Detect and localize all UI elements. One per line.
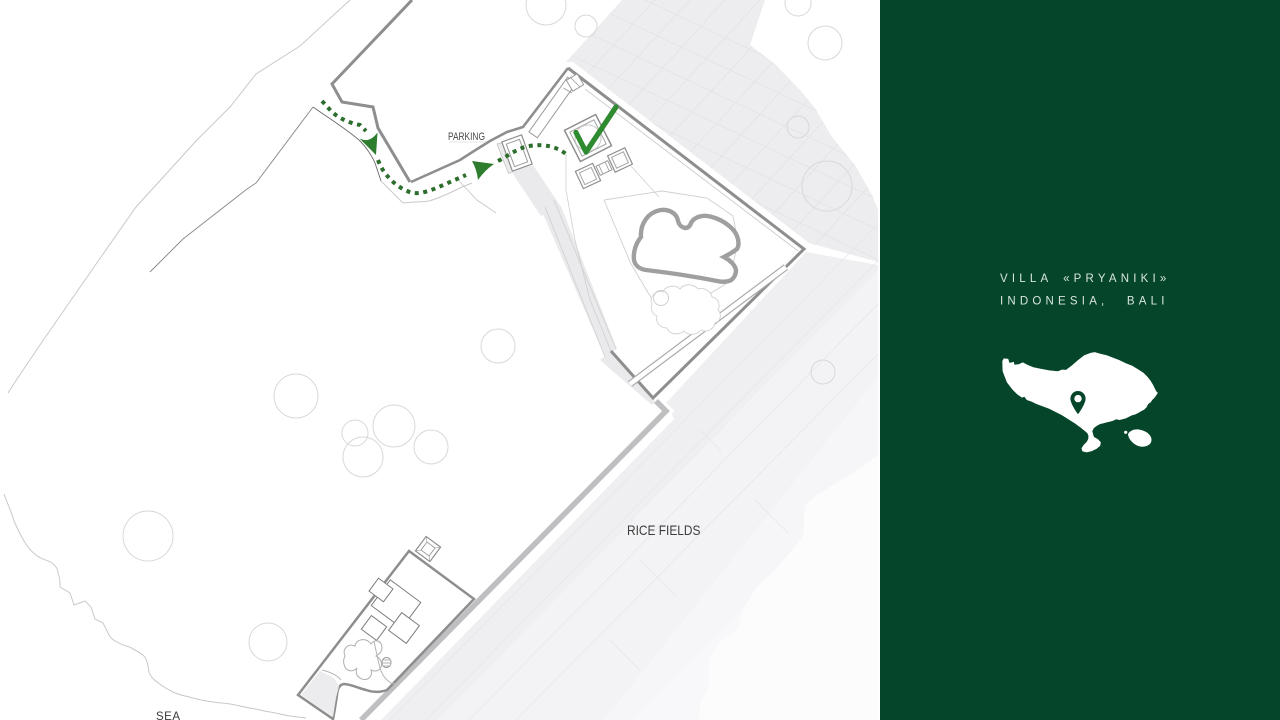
svg-text:VILLA «PRYANIKI»: VILLA «PRYANIKI»	[1000, 273, 1171, 285]
svg-text:INDONESIA, BALI: INDONESIA, BALI	[1000, 296, 1169, 308]
svg-text:RICE FIELDS: RICE FIELDS	[627, 522, 700, 538]
svg-text:SEA: SEA	[156, 711, 181, 720]
svg-text:PARKING: PARKING	[448, 131, 485, 143]
